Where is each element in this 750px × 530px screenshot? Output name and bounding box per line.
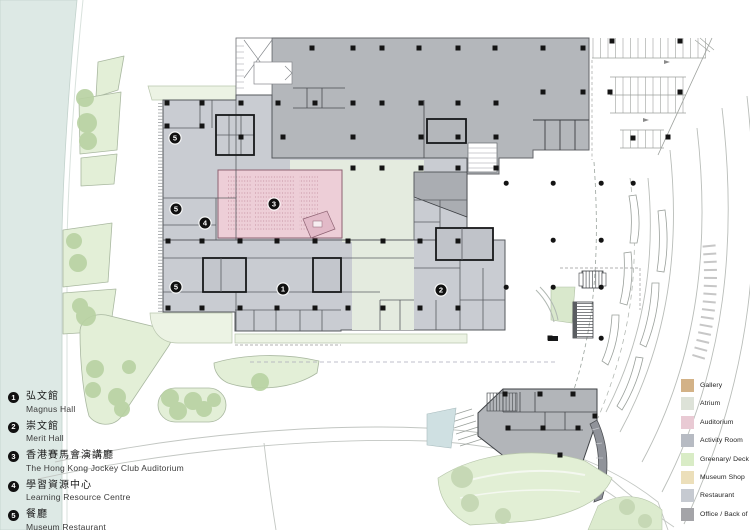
color-legend-label: Auditorium: [700, 419, 734, 426]
key-legend-label-en: Merit Hall: [26, 433, 64, 444]
color-legend-label: Office / Back of House: [700, 511, 750, 518]
bus-platforms: [602, 195, 667, 410]
color-legend-item: Gallery: [681, 379, 750, 392]
corridor: [254, 62, 292, 84]
key-legend: 1弘文館Magnus Hall2崇文館Merit Hall3香港賽馬會演講廳Th…: [8, 391, 258, 530]
key-legend-label-en: The Hong Kong Jockey Club Auditorium: [26, 463, 184, 474]
floor-plan-stage: 1234555 1弘文館Magnus Hall2崇文館Merit Hall3香港…: [0, 0, 750, 530]
color-legend-label: Greenary/ Deck: [700, 456, 749, 463]
color-legend-item: Restaurant: [681, 489, 750, 502]
key-legend-label-en: Learning Resource Centre: [26, 492, 131, 503]
stair-notch: [468, 143, 497, 172]
key-legend-number: 3: [8, 451, 19, 462]
color-legend-swatch: [681, 397, 694, 410]
parking: [592, 38, 714, 160]
key-legend-number: 4: [8, 481, 19, 492]
facade-louvers: [158, 103, 163, 312]
key-legend-number: 5: [8, 510, 19, 521]
key-legend-item: 3香港賽馬會演講廳The Hong Kong Jockey Club Audit…: [8, 450, 258, 474]
key-legend-label-zh: 弘文館: [26, 391, 75, 404]
key-legend-label-zh: 崇文館: [26, 421, 64, 434]
key-legend-number: 2: [8, 422, 19, 433]
core-room: [427, 119, 466, 143]
key-legend-label-en: Magnus Hall: [26, 404, 75, 415]
key-legend-text: 餐廳Museum Restaurant: [26, 509, 106, 530]
color-legend-item: Office / Back of House: [681, 508, 750, 521]
upper-building-mass: [236, 38, 589, 174]
color-legend-label: Museum Shop: [700, 474, 745, 481]
key-legend-label-en: Museum Restaurant: [26, 522, 106, 530]
color-legend-swatch: [681, 508, 694, 521]
color-legend-item: Museum Shop: [681, 471, 750, 484]
water-feature: [427, 408, 456, 448]
color-legend-item: Atrium: [681, 397, 750, 410]
key-legend-text: 弘文館Magnus Hall: [26, 391, 75, 415]
key-legend-item: 5餐廳Museum Restaurant: [8, 509, 258, 530]
key-legend-text: 學習資源中心Learning Resource Centre: [26, 480, 131, 504]
key-legend-label-zh: 餐廳: [26, 509, 106, 522]
color-legend-item: Greenary/ Deck: [681, 453, 750, 466]
color-legend-swatch: [681, 416, 694, 429]
color-legend-label: Activity Room: [700, 437, 743, 444]
color-legend-swatch: [681, 471, 694, 484]
color-legend-item: Auditorium: [681, 416, 750, 429]
key-legend-label-zh: 學習資源中心: [26, 480, 131, 493]
key-legend-item: 4學習資源中心Learning Resource Centre: [8, 480, 258, 504]
color-legend-swatch: [681, 489, 694, 502]
key-legend-item: 1弘文館Magnus Hall: [8, 391, 258, 415]
color-legend-label: Atrium: [700, 400, 720, 407]
color-legend-label: Gallery: [700, 382, 722, 389]
color-legend-swatch: [681, 434, 694, 447]
key-legend-text: 香港賽馬會演講廳The Hong Kong Jockey Club Audito…: [26, 450, 184, 474]
key-legend-text: 崇文館Merit Hall: [26, 421, 64, 445]
key-legend-number: 1: [8, 392, 19, 403]
color-legend-swatch: [681, 379, 694, 392]
color-legend-swatch: [681, 453, 694, 466]
color-legend-item: Activity Room: [681, 434, 750, 447]
key-legend-label-zh: 香港賽馬會演講廳: [26, 450, 184, 463]
south-greenery: [438, 453, 662, 530]
color-legend: GalleryAtriumAuditoriumActivity RoomGree…: [681, 379, 750, 526]
key-legend-item: 2崇文館Merit Hall: [8, 421, 258, 445]
color-legend-label: Restaurant: [700, 492, 734, 499]
